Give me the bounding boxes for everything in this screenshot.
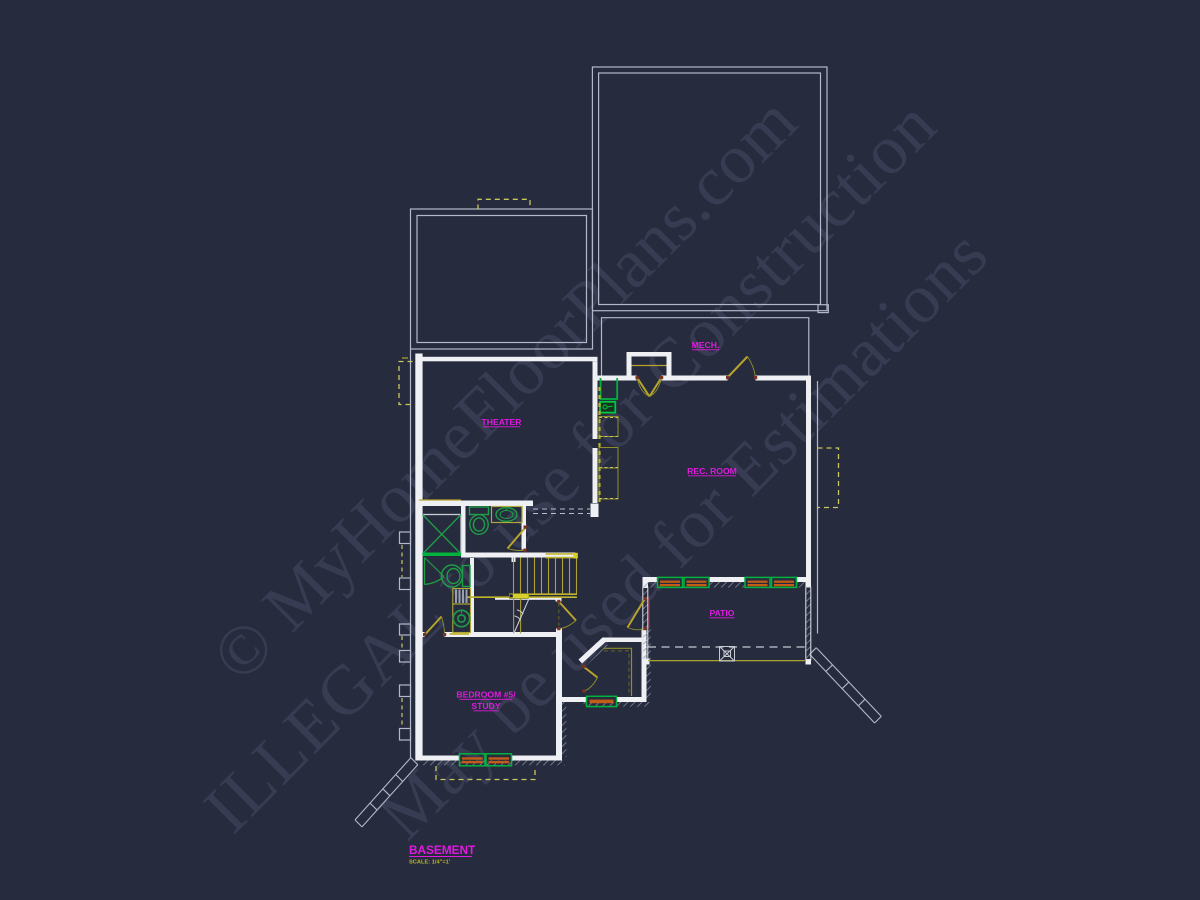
svg-text:THEATER: THEATER: [482, 417, 523, 427]
svg-text:STUDY: STUDY: [471, 701, 500, 711]
svg-text:BEDROOM #5/: BEDROOM #5/: [456, 690, 516, 700]
svg-text:MECH.: MECH.: [692, 340, 720, 350]
svg-text:PATIO: PATIO: [710, 608, 735, 618]
svg-text:SCALE: 1/4"=1': SCALE: 1/4"=1': [409, 860, 451, 866]
svg-text:REC. ROOM: REC. ROOM: [687, 466, 737, 476]
svg-text:BASEMENT: BASEMENT: [409, 843, 476, 857]
